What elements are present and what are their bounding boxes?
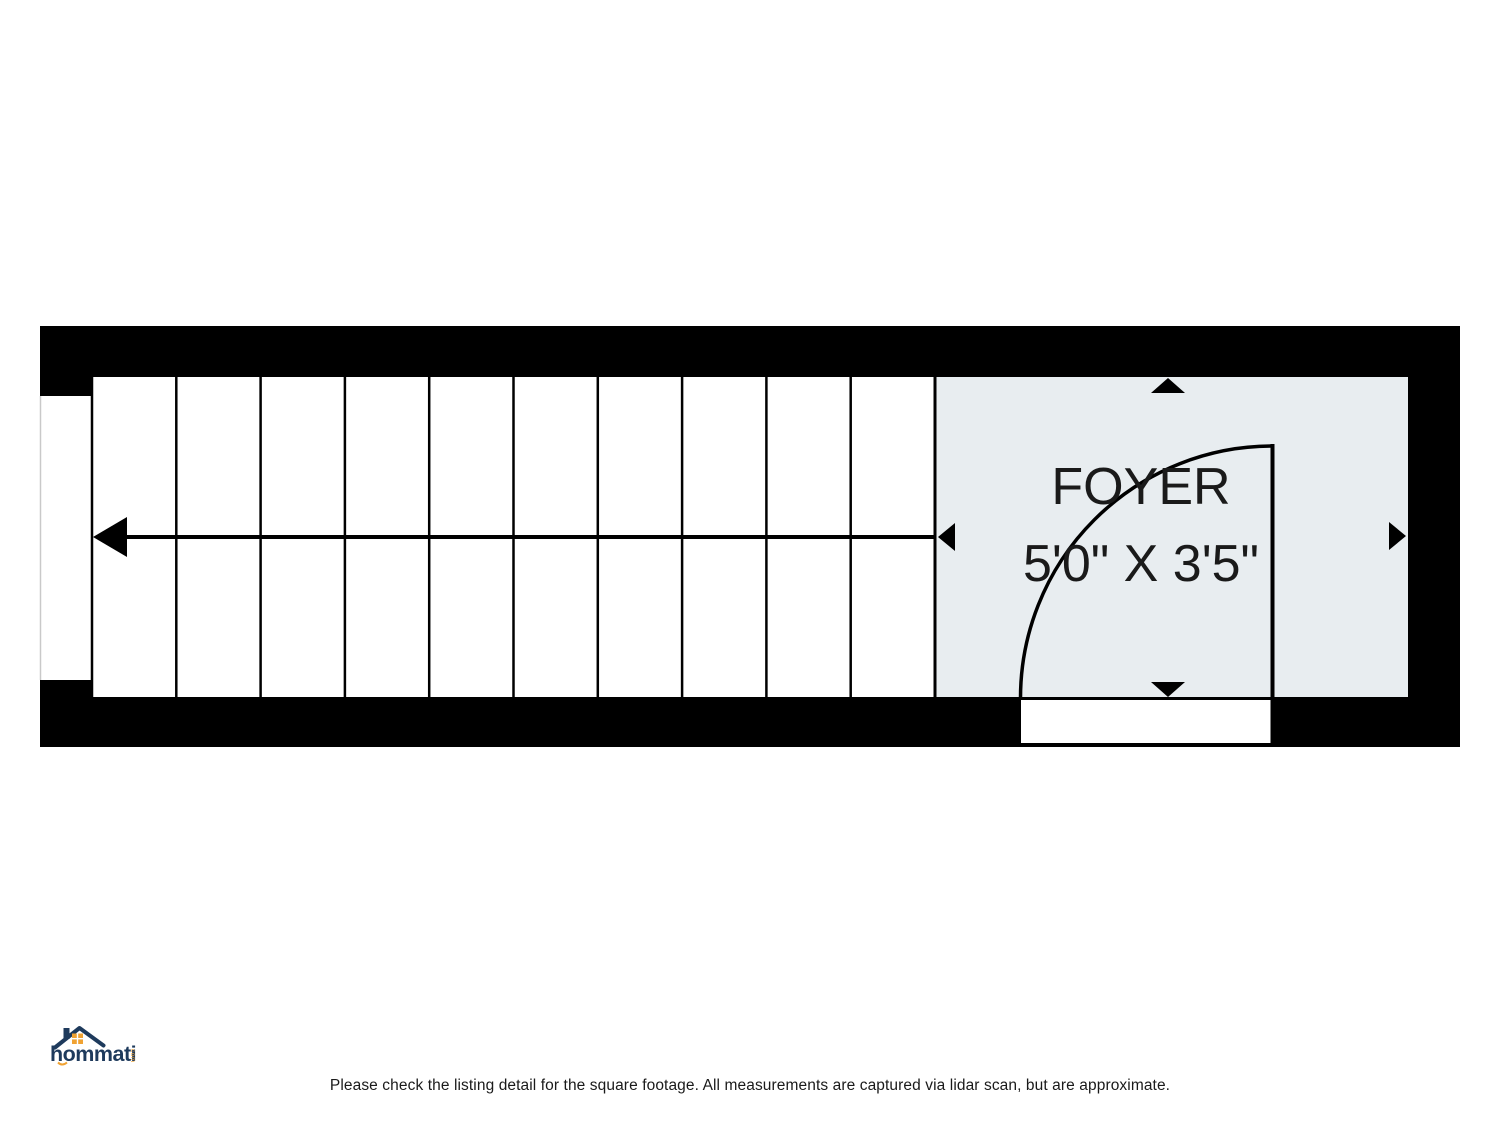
floor-plan-canvas: FOYER 5'0" X 3'5" hommati com Please che… [0,0,1500,1125]
logo-suffix-text: com [129,1049,136,1063]
left-wall-upper [40,326,91,396]
floor-plan: FOYER 5'0" X 3'5" [0,0,1500,1125]
door-opening [1021,700,1273,743]
room-dimensions-label: 5'0" X 3'5" [1023,535,1259,593]
logo-brand-text: hommati [50,1042,136,1066]
disclaimer-text: Please check the listing detail for the … [0,1077,1500,1095]
hommati-logo: hommati com [48,1020,148,1072]
top-wall [40,326,1460,377]
right-wall [1408,326,1460,747]
left-wall-lower [40,680,91,747]
room-name-label: FOYER [1051,458,1230,516]
